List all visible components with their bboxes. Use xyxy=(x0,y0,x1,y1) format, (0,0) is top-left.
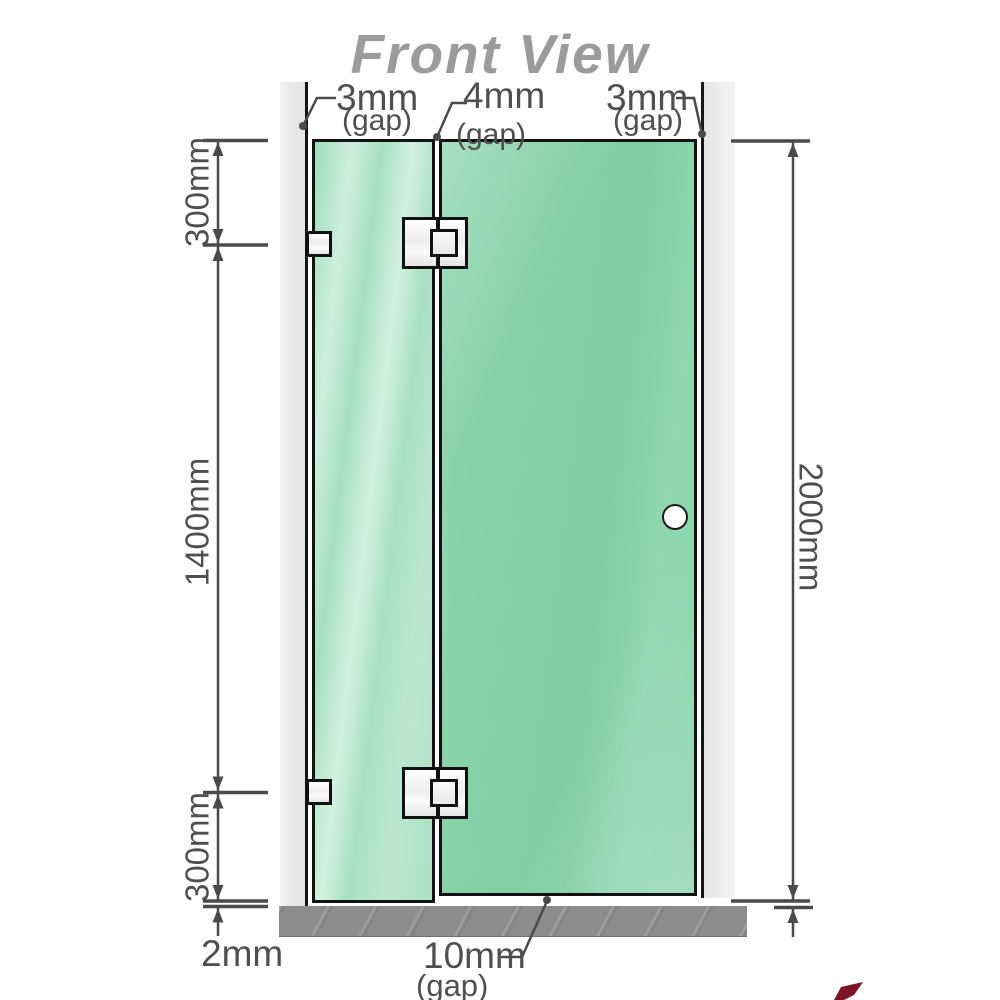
hinge-notch xyxy=(430,229,458,257)
hinge-top-icon xyxy=(402,217,468,269)
dim-label-1400: 1400mm xyxy=(181,458,214,586)
wall-left xyxy=(280,82,308,907)
floor-hob xyxy=(279,906,747,937)
dim-label-2000: 2000mm xyxy=(795,463,828,591)
dim-label-2mm: 2mm xyxy=(201,935,283,972)
hinge-bottom-icon xyxy=(402,767,468,819)
gap-label-right-unit: (gap) xyxy=(613,106,683,136)
wall-right xyxy=(701,82,735,898)
glass-panel-door xyxy=(439,139,697,896)
dim-label-10mm-unit: (gap) xyxy=(416,970,488,1000)
dim-label-300-bottom: 300mm xyxy=(181,792,214,902)
gap-label-mid-unit: (gap) xyxy=(456,120,526,150)
wall-bracket-top-icon xyxy=(306,231,332,257)
door-handle-knob-icon xyxy=(662,504,688,530)
hinge-notch xyxy=(430,779,458,807)
logo-fragment-icon xyxy=(834,982,863,1000)
wall-bracket-bottom-icon xyxy=(306,779,332,805)
front-view-diagram: Front View xyxy=(0,0,1000,1000)
dim-label-300-top: 300mm xyxy=(181,137,214,247)
gap-label-left-unit: (gap) xyxy=(342,106,412,136)
gap-label-mid-value: 4mm xyxy=(463,77,545,114)
